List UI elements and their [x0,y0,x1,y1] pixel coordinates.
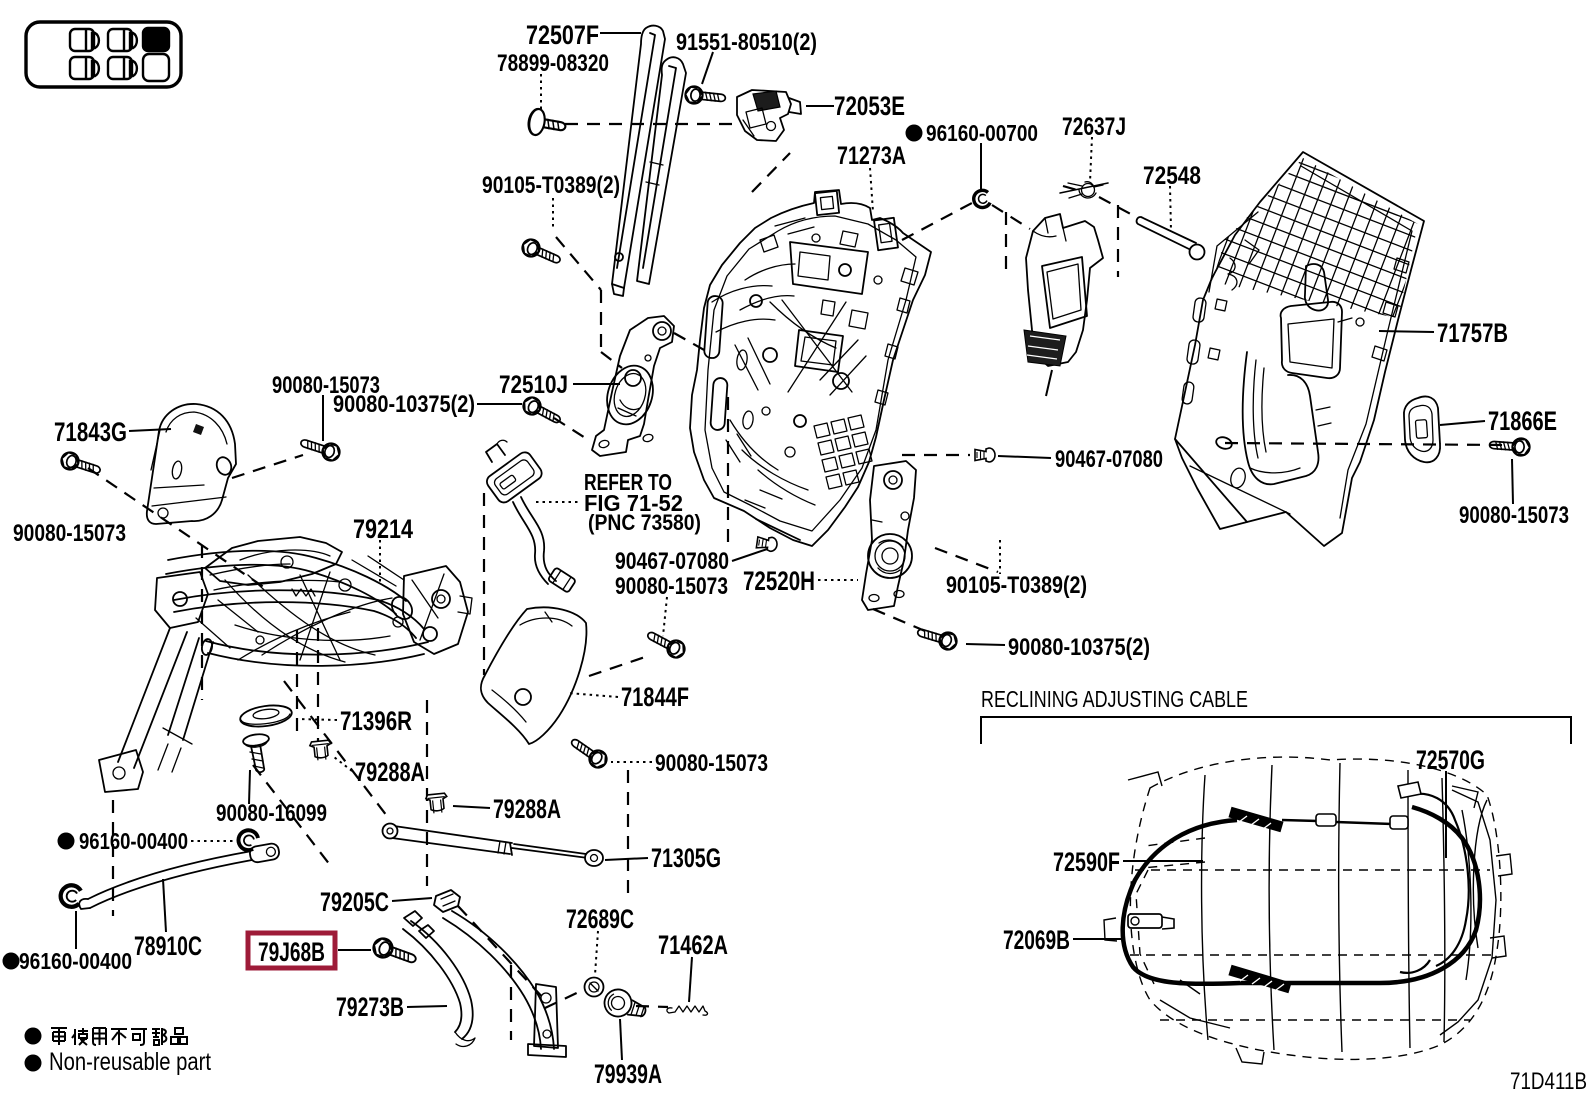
svg-text:91551-80510(2): 91551-80510(2) [676,29,817,56]
svg-text:71843G: 71843G [54,417,127,447]
svg-text:90080-10375(2): 90080-10375(2) [333,391,475,418]
svg-text:96160-00400: 96160-00400 [79,828,188,854]
svg-text:72069B: 72069B [1003,925,1070,955]
svg-text:96160-00400: 96160-00400 [19,948,132,974]
svg-text:90105-T0389(2): 90105-T0389(2) [946,572,1087,599]
svg-text:79J68B: 79J68B [258,937,325,967]
svg-text:90080-15073: 90080-15073 [1459,502,1569,529]
svg-text:96160-00700: 96160-00700 [926,120,1038,146]
svg-text:72520H: 72520H [743,566,815,596]
svg-text:RECLINING ADJUSTING CABLE: RECLINING ADJUSTING CABLE [981,686,1248,712]
svg-text:71396R: 71396R [340,706,412,736]
svg-text:71866E: 71866E [1488,406,1557,436]
svg-text:72510J: 72510J [499,371,568,399]
svg-text:79939A: 79939A [594,1059,662,1089]
svg-text:(PNC 73580): (PNC 73580) [588,510,701,535]
svg-text:90080-10375(2): 90080-10375(2) [1008,634,1150,661]
svg-text:71462A: 71462A [658,930,728,960]
svg-text:71757B: 71757B [1437,318,1508,348]
svg-text:79288A: 79288A [493,794,561,824]
svg-text:90080-15073: 90080-15073 [615,573,728,600]
svg-text:72590F: 72590F [1053,847,1120,877]
svg-text:72637J: 72637J [1062,113,1126,141]
svg-text:90080-15073: 90080-15073 [13,520,126,547]
svg-text:79214: 79214 [353,514,413,544]
svg-text:Non-reusable part: Non-reusable part [49,1048,211,1076]
svg-text:90467-07080: 90467-07080 [615,548,729,575]
svg-text:71273A: 71273A [837,142,906,170]
svg-text:71305G: 71305G [651,843,721,873]
svg-text:79288A: 79288A [355,757,425,787]
svg-text:71D411B: 71D411B [1510,1068,1587,1095]
svg-text:72689C: 72689C [566,904,634,934]
svg-text:72548: 72548 [1143,162,1201,190]
svg-text:79205C: 79205C [320,887,389,917]
svg-text:72053E: 72053E [834,91,905,121]
svg-text:90467-07080: 90467-07080 [1055,446,1163,473]
svg-text:90080-16099: 90080-16099 [216,800,327,827]
svg-text:90080-15073: 90080-15073 [655,750,768,777]
svg-text:90105-T0389(2): 90105-T0389(2) [482,172,620,199]
svg-text:78899-08320: 78899-08320 [497,50,609,77]
svg-text:78910C: 78910C [134,931,202,961]
svg-text:71844F: 71844F [621,682,689,712]
svg-text:72570G: 72570G [1416,745,1485,775]
svg-text:79273B: 79273B [336,992,404,1022]
svg-text:72507F: 72507F [526,20,599,50]
